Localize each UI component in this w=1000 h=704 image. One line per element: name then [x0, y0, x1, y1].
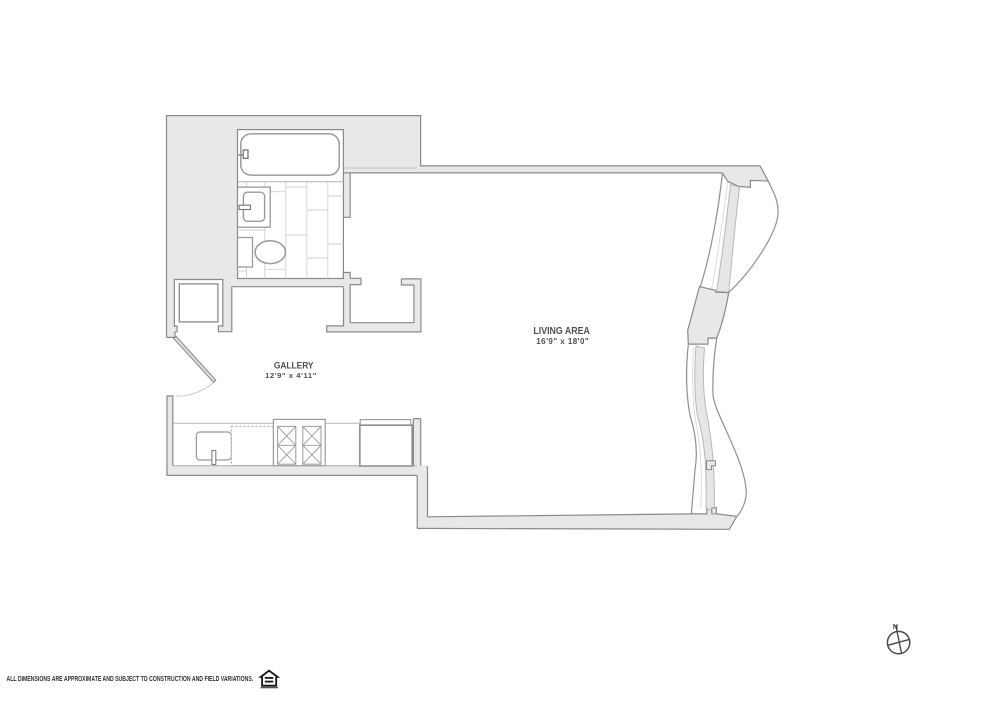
svg-text:LIVING AREA: LIVING AREA	[533, 325, 590, 336]
svg-text:GALLERY: GALLERY	[274, 360, 314, 371]
svg-text:12'9" x 4'11": 12'9" x 4'11"	[265, 371, 317, 380]
svg-text:ALL DIMENSIONS ARE APPROXIMATE: ALL DIMENSIONS ARE APPROXIMATE AND SUBJE…	[7, 675, 254, 683]
svg-text:16'9" x 18'0": 16'9" x 18'0"	[536, 337, 589, 346]
svg-text:N: N	[893, 624, 898, 631]
